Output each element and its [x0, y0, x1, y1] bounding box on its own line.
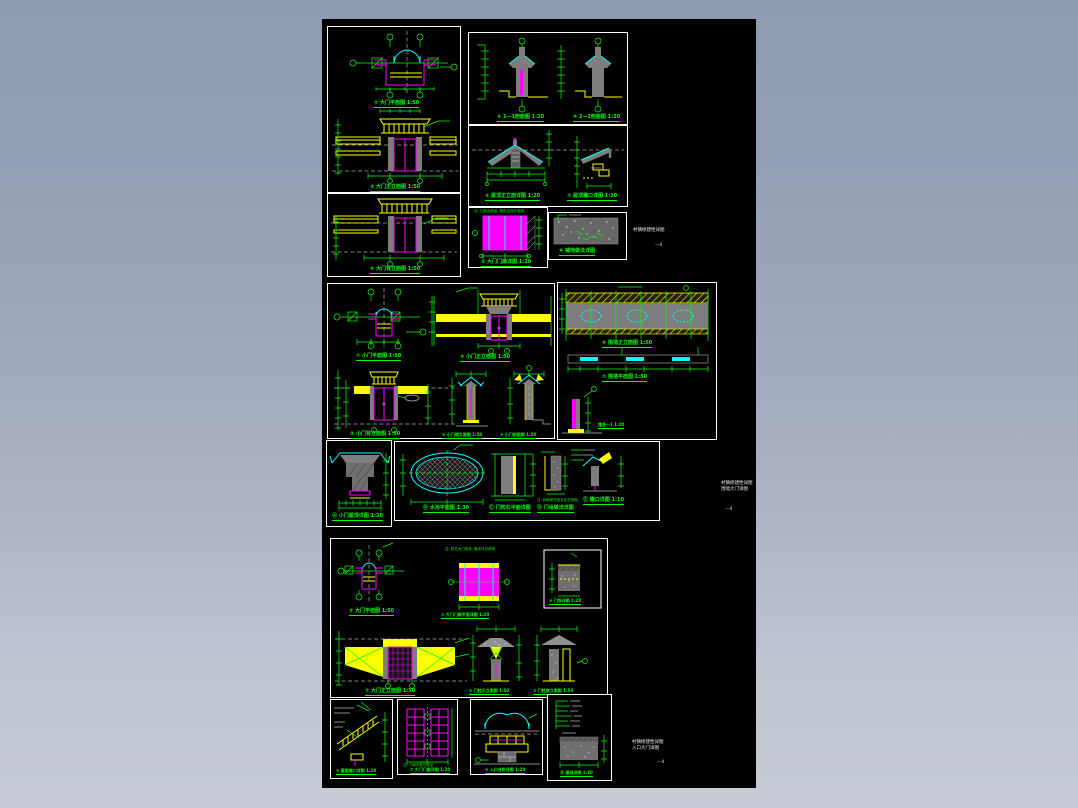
sheet-note: 村镇修建性详图 围墙大门详图	[721, 481, 753, 494]
panel-paving-detail: ⑧ 铺地做法详图	[548, 212, 627, 260]
panel-gate-leaf-grid: 注: 门扇为铁艺成品 ⑦ 大门门扇详图 1:20	[397, 699, 458, 775]
drawing-caption: Ⓔ 檐口详图 1:10	[583, 498, 624, 505]
drawing-caption: ④ 1—1剖面图 1:20	[497, 115, 544, 122]
drawing-caption: Ⓑ 水池平面图 1:30	[423, 506, 469, 513]
wall-sheet-drawing	[558, 283, 716, 439]
drawing-caption: Ⓐ 小门屋顶详图 1:20	[332, 514, 383, 521]
drawing-caption: ④ 小门侧立面图 1:50	[442, 433, 482, 439]
small-gate-sheet-drawing	[328, 284, 554, 438]
drawing-caption: ① 大门平面图 1:50	[374, 101, 419, 108]
drawing-caption: ① 大门正立面图 1:50	[365, 689, 415, 696]
sheet-page-mark: —4	[657, 760, 664, 765]
drawing-caption: Ⓓ 门垛做法详图	[537, 506, 574, 513]
foundation-detail-drawing	[548, 695, 611, 780]
panel-small-gate-sheet: ① 小门平面图 1:50 ③ 小门正立面图 1:50 ② 小门背立面图 1:50…	[327, 283, 555, 439]
sheet-note: 村镇修建性详图	[633, 228, 665, 234]
drawing-caption: ⑤ 屋顶正立面详图 1:20	[485, 194, 540, 201]
drawing-caption: ⑤ 大门门扇平面详图 1:20	[441, 613, 489, 619]
drawing-caption: ① 小门平面图 1:50	[356, 354, 401, 361]
sheet-page-mark: —4	[655, 243, 662, 248]
drawing-caption: ② 小门背立面图 1:50	[350, 432, 400, 439]
panel-gate-plan-front-elevation: ① 大门平面图 1:50 ③ 大门正立面图 1:50	[327, 26, 461, 193]
drawing-caption: ⑥ 2—2剖面图 1:20	[573, 115, 620, 122]
drawing-canvas: ① 大门平面图 1:50 ③ 大门正立面图 1:50 ⑤ 大门背立面图 1:50	[322, 19, 756, 788]
drawing-caption: ② 大门平面图 1:50	[349, 609, 394, 616]
panel-gate-leaf-detail: 注: 门扇为成品, 颜色见设计说明 ② 大门门扇详图 1:20	[468, 207, 548, 268]
panel-gate-back-elevation: ⑤ 大门背立面图 1:50	[327, 193, 461, 277]
panel-roof-details: ⑤ 屋顶正立面详图 1:20 ⑦ 屋顶檐口详图 1:20	[468, 125, 628, 207]
drawing-caption: ⑦ 屋顶檐口详图 1:20	[567, 194, 617, 201]
drawing-caption: Ⓒ 门枕石平面详图	[489, 506, 531, 513]
drawing-caption: ⑤ 大门背立面图 1:50	[370, 267, 420, 274]
drawing-caption: ⑧ 门垛详图 1:20	[549, 599, 581, 605]
panel-pier-sections: ④ 1—1剖面图 1:20 ⑥ 2—2剖面图 1:20	[468, 32, 628, 125]
sheet-page-mark: —4	[725, 507, 732, 512]
sheet-note: 村镇修建性详图 入口大门详图	[632, 740, 664, 753]
panel-eave-detail: ⑥ 屋面檐口详图 1:10	[330, 699, 393, 779]
drawing-caption: ④ 门柱正立面图 1:50	[469, 689, 509, 695]
panel-main-gate-sheet: ② 大门平面图 1:50 注: 铁艺大门成品, 做法详见说明 ⑤ 大门门扇平面详…	[330, 538, 608, 698]
drawing-caption: ⑤ 小门剖面图 1:20	[500, 433, 536, 439]
drawing-caption: ② 大门门扇详图 1:20	[481, 260, 531, 267]
eave-detail-drawing	[331, 700, 392, 778]
sheet-note-line: 入口大门详图	[632, 746, 664, 752]
drawing-caption: ⑦ 大门门扇详图 1:20	[410, 768, 450, 774]
drawing-caption: ⑦ 围墙平面图 1:50	[602, 375, 647, 382]
panel-landscape-details: Ⓑ 水池平面图 1:30 Ⓒ 门枕石平面详图 注: 砖砌体外贴文化石饰面 Ⓓ 门…	[394, 441, 660, 521]
drawing-note: 注: 门扇为成品, 颜色见设计说明	[474, 209, 524, 213]
drawing-caption: ⑧ 铺地做法详图	[559, 249, 595, 256]
drawing-caption: ⑥ 围墙正立面图 1:50	[602, 341, 652, 348]
drawing-caption: ⑨ 入口台阶详图 1:20	[485, 768, 525, 774]
cad-preview-window: ① 大门平面图 1:50 ③ 大门正立面图 1:50 ⑤ 大门背立面图 1:50	[0, 0, 1078, 808]
drawing-caption: Ⓓ 基础详图 1:20	[560, 771, 593, 777]
drawing-caption: 墙身—1 1:20	[598, 423, 624, 429]
pier-sections-drawing	[469, 33, 627, 124]
gate-back-elevation-drawing	[328, 194, 460, 276]
drawing-note: 注: 铁艺大门成品, 做法详见说明	[445, 547, 495, 551]
drawing-note: 注: 砖砌体外贴文化石饰面	[537, 498, 578, 502]
panel-small-gate-roof-detail: Ⓐ 小门屋顶详图 1:20	[326, 440, 392, 527]
panel-entrance-step-detail: ⑨ 入口台阶详图 1:20	[470, 699, 543, 775]
drawing-caption: ⑥ 屋面檐口详图 1:10	[336, 769, 376, 775]
sheet-note-line: 村镇修建性详图	[633, 228, 665, 234]
panel-foundation-detail: Ⓓ 基础详图 1:20	[547, 694, 612, 781]
sheet-note-line: 围墙大门详图	[721, 487, 753, 493]
drawing-caption: ③ 大门正立面图 1:50	[370, 185, 420, 192]
panel-wall-sheet: ⑥ 围墙正立面图 1:50 ⑦ 围墙平面图 1:50 墙身—1 1:20	[557, 282, 717, 440]
entrance-step-detail-drawing	[471, 700, 542, 774]
gate-plan-front-elevation-drawing	[328, 27, 460, 192]
drawing-caption: ③ 小门正立面图 1:50	[460, 355, 510, 362]
